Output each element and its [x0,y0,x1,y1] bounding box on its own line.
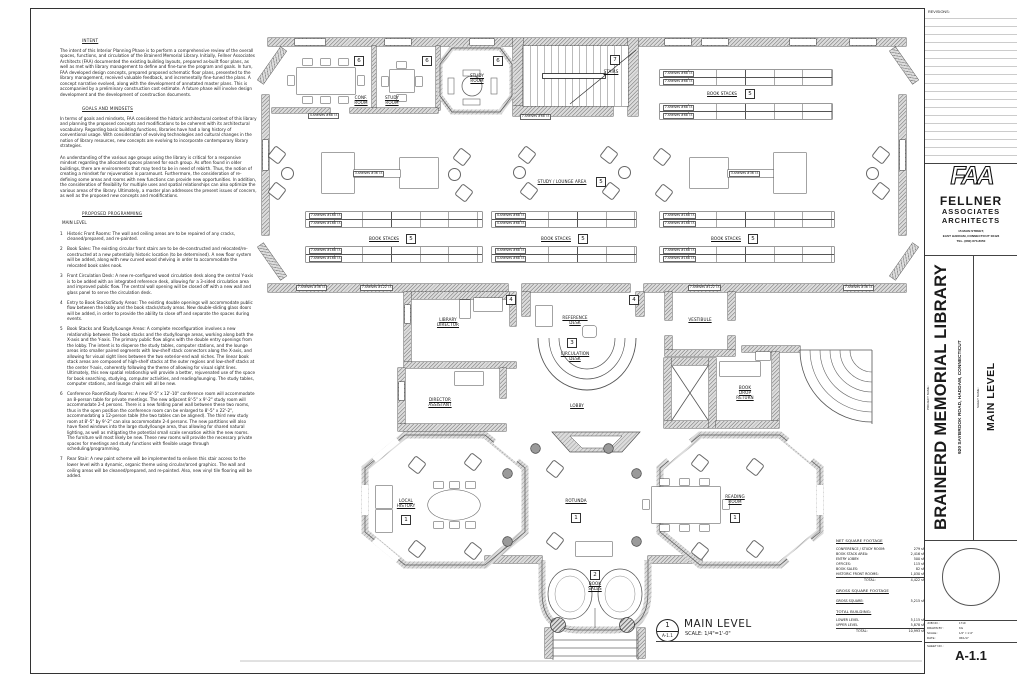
book-drop-desk [756,352,770,360]
date-label: DATE : [927,636,936,640]
chair [466,482,475,488]
study-room-label: STUDY ROOM [385,96,399,106]
elevator-wall [664,358,671,428]
chair [321,97,330,103]
study-lounge-label: STUDY / LOUNGE AREA [538,180,587,185]
net-sf-heading: NET SQUARE FOOTAGE [836,538,924,544]
intent-heading: INTENT [82,38,257,44]
book-stacks-label: BOOK STACKS [369,237,399,242]
key-1: 1 [571,513,581,523]
item-number: 7 [60,456,67,478]
key-6: 6 [422,56,432,66]
item-text: Historic Front Rooms: The wall and ceili… [67,231,257,242]
revisions-rows [925,18,1017,163]
program-item: 5Book Stacks and Study/Lounge Areas: A c… [60,326,257,387]
shelf-label: 7-shelves #168 l.f. [309,221,342,227]
director-assistant-label: DIRECTOR ASSISTANT [428,398,451,408]
shelf-label: 7-shelves #168 l.f. [309,248,342,254]
window [702,39,728,45]
item-number: 5 [60,326,67,387]
chair [434,522,443,528]
couch [376,510,392,532]
stair-wall [628,38,638,116]
chair [358,76,364,85]
goals-heading: GOALS AND MINDSETS [82,106,257,112]
row-value: 5,878 sf [911,623,924,628]
chair [660,525,669,531]
firm-name-3: ARCHITECTS [925,216,1017,225]
window [790,39,816,45]
wall-segment [522,284,630,292]
oval-table [428,490,480,520]
program-item: 2Book Sales: The existing circular front… [60,246,257,268]
chair [303,59,312,65]
titleblock-divider [973,255,974,540]
sheet-name: MAIN LEVEL [985,258,997,536]
chair [700,525,709,531]
stamp-circle [942,548,1000,606]
narrative-column: INTENT The intent of this Interior Plann… [60,38,257,483]
shelf-label: 7-shelves #122 l.f. [360,285,393,291]
program-item: 6Conference Room/Study Rooms: A new 8'-5… [60,391,257,452]
reading-room-label: READING ROOM [725,495,745,505]
item-number: 4 [60,300,67,322]
book-stacks-label: BOOK STACKS [707,92,737,97]
shelf-label: 7-shelves #36 l.f. [843,285,874,291]
item-text: Entry to Book Stacks/Study Areas: The ex… [67,300,257,322]
stair-wall [513,38,523,116]
column [503,469,512,478]
key-5: 5 [748,234,758,244]
drawing-reference-bubble: 1 A-1.1 [656,619,679,642]
key-7: 7 [610,55,620,65]
goals-paragraph-2: An understanding of the various age grou… [60,155,257,199]
chair [700,479,709,485]
window [295,39,325,45]
wall-segment [522,292,530,316]
key-6: 6 [493,56,503,66]
side-table [866,167,879,180]
wall-segment [398,424,506,431]
book-stacks-label: BOOK STACKS [541,237,571,242]
shelf-label: 7-shelves #168 l.f. [663,213,696,219]
key-6: 6 [354,56,364,66]
window [470,39,494,45]
item-text: Rear Stair: A new paint scheme will be i… [67,456,257,478]
firm-address-2: EAST HADDAM, CONNECTICUT 06423 [925,234,1017,238]
intent-paragraph: The intent of this Interior Planning Pha… [60,48,257,98]
shelf-label: 7-shelves #168 l.f. [663,221,696,227]
item-text: Book Sales: The existing circular front … [67,246,257,268]
chair [450,482,459,488]
total-value: 4,422 sf [911,578,924,583]
shelf-label: 4-shelves #68 l.f. [495,213,526,219]
chair [643,500,649,509]
column [503,537,512,546]
program-item: 4Entry to Book Stacks/Study Areas: The e… [60,300,257,322]
shelf-label: 4-shelves #68 l.f. [308,113,339,119]
drawn-by-label: DRAWN BY : [927,626,944,630]
drawing-reference-sheet: A-1.1 [657,632,678,640]
side-table [618,166,631,179]
shelf-label: 7-shelves #68 l.f. [663,71,694,77]
key-5: 5 [406,234,416,244]
column [531,444,540,453]
column [604,444,613,453]
key-5: 5 [596,177,606,187]
book-drop-desk [720,362,760,376]
shelf-label: 7-shelves #68 l.f. [663,113,694,119]
drawing-reference-number: 1 [657,620,678,632]
window [399,382,404,400]
key-1: 1 [401,515,411,525]
wall-segment [372,46,376,110]
window [405,305,410,323]
wall-segment [716,421,779,428]
computer-table [774,153,806,193]
key-5: 5 [745,89,755,99]
shelf-label: 7-shelves #122 l.f. [688,285,721,291]
row-label: GROSS SQUARE: [836,599,864,604]
table-row: TOTAL:10,993 sf [836,629,924,634]
total-label: TOTAL: [864,578,876,583]
title-block: REVISIONS: FAA FELLNER ASSOCIATES ARCHIT… [924,8,1016,674]
sheet-no: A-1.1 [925,648,1017,663]
column [632,469,641,478]
chair [660,479,669,485]
study-room-label: STUDY ROOM [470,74,484,84]
chair [680,525,689,531]
row-value: 1,030 sf [911,572,924,577]
book-stacks-label: BOOK STACKS [711,237,741,242]
shelf-label: 4-shelves #68 l.f. [495,256,526,262]
chair [339,59,348,65]
chair [680,479,689,485]
chair [434,482,443,488]
programming-heading: PROPOSED PROGRAMMING [82,211,257,217]
total-label: TOTAL: [856,629,868,634]
computer-table [400,158,438,188]
computer-table [690,158,728,188]
display-case [536,306,552,326]
wall-segment [436,46,440,110]
window [850,39,876,45]
shelf-label: 3-shelves #36 l.f. [729,171,760,177]
stair-rail [543,74,605,78]
wall-segment [637,628,645,658]
sheet-name-label: SHEET NAME : [976,258,980,536]
conference-table [297,68,355,94]
side-table [513,166,526,179]
view-title: MAIN LEVEL [684,618,752,630]
firm-name-1: FELLNER [925,194,1017,208]
total-building-heading: TOTAL BUILDING: [836,609,924,615]
entry-column [620,618,634,632]
firm-name-2: ASSOCIATES [925,207,1017,216]
project-address: 920 SAYBROOK ROAD, HADDAM, CONNECTICUT [958,258,963,536]
circulation-desk-label: CIRCULATION DESK [561,352,590,362]
item-number: 6 [60,391,67,452]
chair [321,59,330,65]
item-text: Conference Room/Study Rooms: A new 8'-5"… [67,391,257,452]
shelf-label: 7-shelves #168 l.f. [309,213,342,219]
wall-segment [665,292,672,320]
faa-logo: FAA [925,164,1017,189]
shelf-label: 7-shelves #168 l.f. [663,248,696,254]
book-drop-label: BOOK DROP RETURN [736,386,753,401]
key-2: 2 [590,570,600,580]
item-number: 3 [60,273,67,295]
wall-segment [485,556,542,563]
shelf-label: 4-shelves #68 l.f. [495,221,526,227]
shelf-label: 3-shelves #36 l.f. [353,171,384,177]
chair [339,97,348,103]
item-text: Front Circulation Desk: A new re-configu… [67,273,257,295]
office-desk [455,372,483,385]
revisions-label: REVISIONS: [928,10,950,14]
entry-column [551,618,565,632]
item-number: 2 [60,246,67,268]
firm-address-1: 15 MAIN STREET, [925,229,1017,233]
shelf-label: 7-shelves #68 l.f. [663,79,694,85]
computer-table [322,153,354,193]
area-table: NET SQUARE FOOTAGE CONFERENCE / STUDY RO… [836,538,924,634]
wall-segment [648,556,702,563]
reading-table [652,487,720,523]
project-name-label: PROJECT NAME : [926,258,930,536]
goals-paragraph-1: In terms of goals and mindsets, FAA cons… [60,116,257,149]
key-5: 5 [578,234,588,244]
scale-label: SCALE : [927,631,938,635]
wall-segment [500,368,506,398]
drawn-by-value: KG [959,626,963,630]
elevator-wall [709,358,716,428]
wall-segment [772,352,779,428]
program-item: 1Historic Front Rooms: The wall and ceil… [60,231,257,242]
main-level-heading: MAIN LEVEL [62,220,257,226]
study-table [390,70,414,92]
window [900,140,905,170]
window [665,39,691,45]
shelf-label: 7-shelves #68 l.f. [663,105,694,111]
shelf-unit [576,542,612,556]
chair [397,62,406,68]
item-text: Book Stacks and Study/Lounge Areas: A co… [67,326,257,387]
reference-desk-label: REFERENCE DESK [562,316,587,326]
office-desk [460,300,470,318]
scale-value: 1/4" = 1'-0" [959,631,973,635]
wall-segment [742,346,800,352]
job-no-label: JOB NO. : [927,621,940,625]
item-number: 1 [60,231,67,242]
library-director-label: LIBRARY DIRECTOR [437,318,459,328]
chair [288,76,294,85]
program-item: 3Front Circulation Desk: A new re-config… [60,273,257,295]
shelf-label: 7-shelves #168 l.f. [309,256,342,262]
total-value: 10,993 sf [909,629,924,634]
shelf-label: 4-shelves #68 l.f. [495,248,526,254]
shelf-label: 7-shelves #68 l.f. [520,114,551,120]
kiosk [583,326,596,337]
chair [382,77,388,86]
gross-sf-heading: GROSS SQUARE FOOTAGE [836,588,924,594]
key-1: 1 [730,513,740,523]
side-table [281,167,294,180]
row-label: UPPER LEVEL [836,623,858,628]
lobby-label: LOBBY [570,404,584,409]
chair [416,77,422,86]
couch [376,486,392,508]
program-item: 7Rear Stair: A new paint scheme will be … [60,456,257,478]
shelf-label: 7-shelves #168 l.f. [663,256,696,262]
conf-room-label: CONF. ROOM [354,96,367,106]
office-desk [474,298,502,311]
local-history-label: LOCAL HISTORY [397,499,415,509]
book-sales-label: BOOK SALES [588,582,601,592]
key-4: 4 [506,295,516,305]
wall-segment [728,292,735,320]
wall-segment [545,628,553,658]
window [385,39,411,45]
chair [450,522,459,528]
wall-segment [665,350,735,356]
wall-segment [404,292,411,368]
stairs-label: STAIRS [604,70,619,75]
key-4: 4 [629,295,639,305]
column [632,537,641,546]
date-value: 06/1/17 [959,636,969,640]
view-title-underline [656,641,922,642]
row-value: 5,215 sf [911,599,924,604]
chair [466,522,475,528]
firm-phone: TEL. (860) 873-8050 [925,239,1017,243]
rotunda-label: ROTUNDA [565,499,586,504]
side-table [448,168,461,181]
view-scale: SCALE: 1/4"=1'-0" [685,631,731,637]
wall-segment [350,108,438,113]
project-name: BRAINERD MEMORIAL LIBRARY [932,258,951,536]
row-label: HISTORIC FRONT ROOMS: [836,572,879,577]
shelf-label: 7-shelves #36 l.f. [296,285,327,291]
chair [303,97,312,103]
job-no-value: 1719 [959,621,965,625]
vestibule-label: VESTIBULE [688,318,711,323]
key-3: 3 [567,338,577,348]
